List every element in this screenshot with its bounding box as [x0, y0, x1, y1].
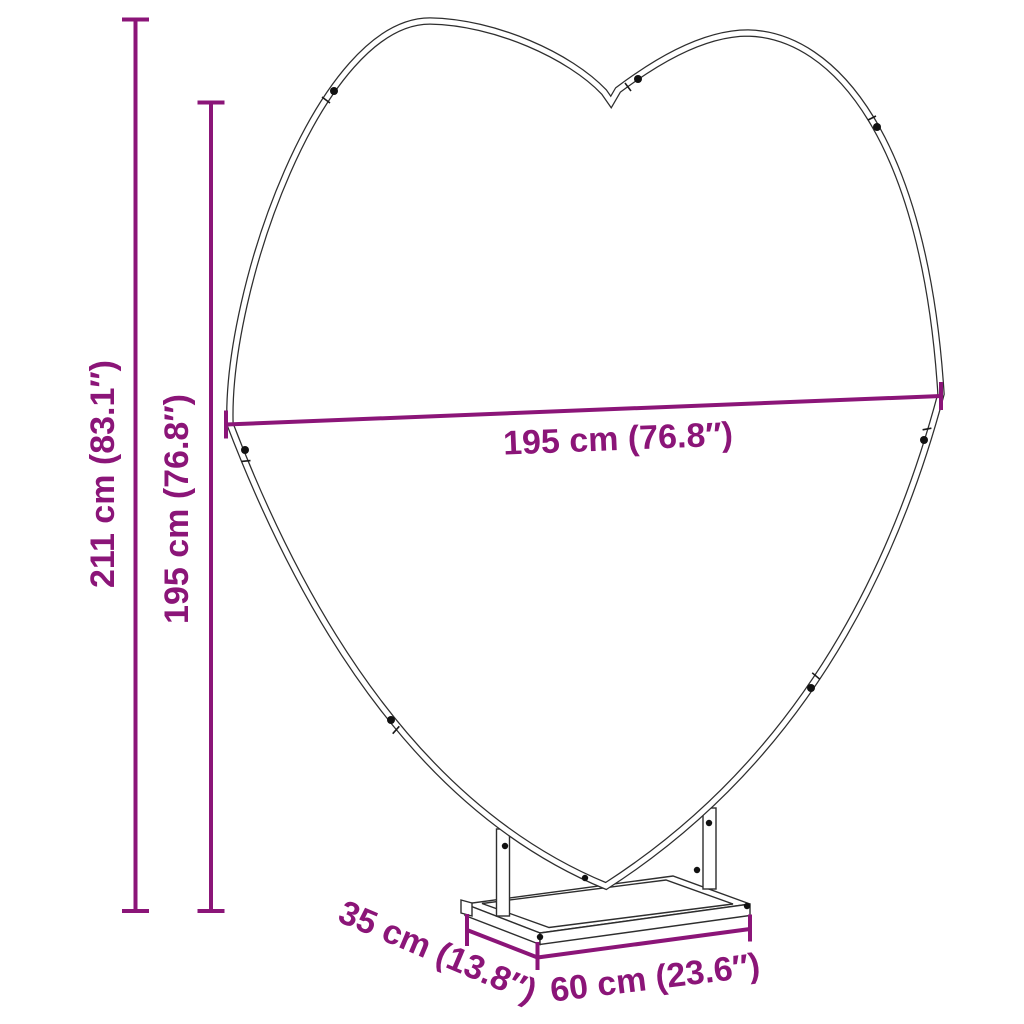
joint-screw: [873, 123, 881, 131]
dimension-label-frame-height: 195 cm (76.8″): [158, 394, 196, 624]
dim-frame-width-line: [226, 396, 941, 425]
dimension-label-total-height: 211 cm (83.1″): [84, 360, 122, 588]
base-tray-left-end-cap: [461, 900, 472, 916]
joint-screw: [634, 75, 642, 83]
diagram-canvas: 211 cm (83.1″) 195 cm (76.8″) 195 cm (76…: [0, 0, 1024, 1024]
joint-tick: [242, 461, 251, 462]
post-screw: [706, 820, 712, 826]
frame-screw: [694, 867, 700, 873]
joint-screw: [387, 716, 395, 724]
dimension-lines: [122, 20, 941, 971]
left-post: [497, 829, 510, 916]
dimension-label-frame-width: 195 cm (76.8″): [502, 415, 733, 462]
frame-joints: [241, 75, 931, 940]
frame-screw: [582, 875, 588, 881]
joint-screw: [330, 87, 338, 95]
tray-screw: [537, 934, 543, 940]
joint-screw: [807, 684, 815, 692]
tray-screw: [744, 903, 750, 909]
product-dimension-diagram: 211 cm (83.1″) 195 cm (76.8″) 195 cm (76…: [0, 0, 1024, 1024]
post-screw: [502, 843, 508, 849]
joint-screw: [920, 436, 928, 444]
joint-screw: [241, 446, 249, 454]
dimension-label-base-width: 60 cm (23.6″): [548, 946, 762, 1009]
